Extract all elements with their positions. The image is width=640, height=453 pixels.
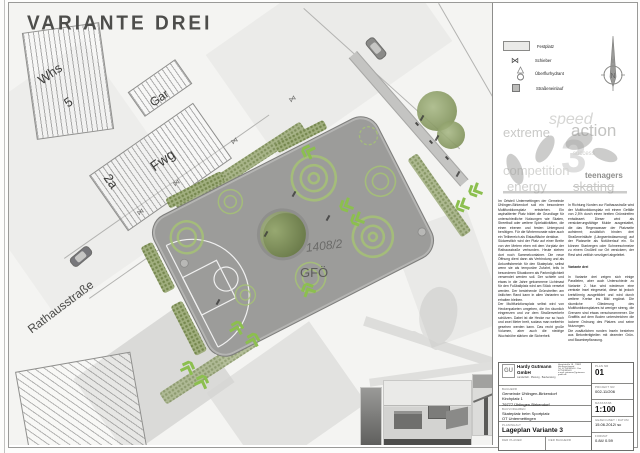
svg-text:N: N	[610, 73, 615, 80]
skate-logo-cloud: extreme speed action 3 success competiti…	[497, 111, 633, 199]
planinhalt-row: PLANINHALT Lageplan Variante 3	[499, 422, 591, 437]
signature-row: DER PLANER DER BAUHERR	[499, 437, 591, 450]
bauherr-signature-cell: DER BAUHERR	[545, 437, 592, 450]
legend-label: Schieber	[535, 58, 552, 63]
legend-label: Straßeneinlauf	[536, 86, 563, 91]
legend-item-hydrant: Überflurhydrant	[503, 68, 564, 78]
legend-item-schieber: ⋈ Schieber	[503, 55, 552, 65]
bauvorhaben-row: BAUVORHABEN Skateplatz beim Sportplatz O…	[499, 406, 591, 422]
firm-tagline: Landschaft · Planung · Bauberatung	[517, 376, 556, 379]
legend-label: Festplatz	[537, 44, 554, 49]
firm-row: GU Hardy Gutmann GmbH Landschaft · Planu…	[499, 363, 591, 386]
photo-skatepark-ramps	[384, 381, 471, 445]
firm-email: e-mail: gutmann@gutmann-gmbh.de	[558, 372, 588, 376]
planinhalt-value: Lageplan Variante 3	[502, 427, 588, 436]
photo-edge-sliver	[361, 388, 381, 445]
legend-item-einlauf: Straßeneinlauf	[503, 83, 563, 93]
gezeichnet-value: 15.06.2012/ sc	[595, 422, 630, 427]
plan-nr-value: 01	[595, 368, 630, 379]
format-cell: FORMAT 0.84/ 0.59	[592, 433, 633, 450]
massstab-value: 1:100	[595, 405, 630, 416]
street-inlet-icon	[512, 84, 520, 92]
direction-arrow-icon	[466, 181, 484, 199]
projekt-nr-value: 002-11/206	[595, 389, 630, 394]
building-southwest	[15, 352, 148, 445]
hydrant-icon	[513, 66, 528, 81]
legend-item-festplatz: Festplatz	[503, 41, 554, 51]
description-col2-intro: In Richtung Norden zur Rathausstraße wir…	[568, 203, 634, 257]
info-panel: Festplatz ⋈ Schieber Überflurhydrant Str…	[492, 3, 637, 445]
bauvorhaben-line: OT Untermettingen	[502, 416, 588, 421]
gezeichnet-cell: GEZEICHNET / DATUM 15.06.2012/ sc	[592, 417, 633, 433]
valve-icon: ⋈	[511, 56, 528, 65]
legend-label: Überflurhydrant	[535, 71, 564, 76]
area-code-label: GFÖ	[300, 265, 328, 280]
building-whs	[22, 22, 114, 140]
planer-signature-cell: DER PLANER	[499, 437, 545, 450]
firm-logo: GU	[502, 364, 515, 378]
festplatz-swatch-icon	[503, 41, 530, 51]
format-value: 0.84/ 0.59	[595, 438, 630, 443]
site-plan: Whs 5 Gar Fwg 2a Rathausstraße ⋈ ⋈ ⋈ ⋈	[9, 3, 492, 445]
photo-skate-rail	[473, 375, 492, 435]
plan-sheet: Whs 5 Gar Fwg 2a Rathausstraße ⋈ ⋈ ⋈ ⋈	[0, 0, 640, 453]
description-column-1: Im Ortsteil Untermettingen der Gemeinde …	[498, 199, 564, 338]
description-col2-heading: Variante drei	[568, 265, 634, 269]
skater-silhouettes	[497, 111, 633, 199]
description-column-2: In Richtung Norden zur Rathausstraße wir…	[568, 199, 634, 347]
firm-name: Hardy Gutmann GmbH	[517, 364, 556, 376]
massstab-cell: MASSSTAB 1:100	[592, 400, 633, 417]
description-col2-body: In Variante drei zeigen sich einige Para…	[568, 275, 634, 342]
projekt-nr-cell: PROJEKT NR 002-11/206	[592, 384, 633, 400]
page-title: VARIANTE DREI	[27, 12, 212, 36]
bauherr-row: BAUHERR Gemeinde Ühlingen-Birkendorf Kir…	[499, 386, 591, 406]
title-block: GU Hardy Gutmann GmbH Landschaft · Planu…	[498, 362, 634, 451]
sheet-edge	[4, 0, 5, 453]
plan-nr-cell: PLAN NR 01	[592, 363, 633, 384]
tree	[437, 121, 465, 149]
north-arrow-icon: N	[599, 35, 627, 99]
